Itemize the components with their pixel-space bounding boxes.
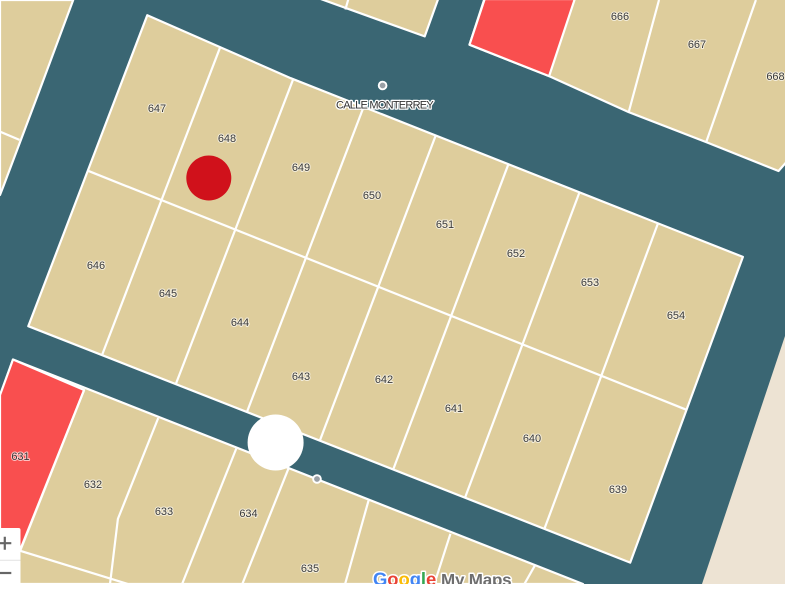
svg-text:640: 640 — [523, 433, 541, 445]
svg-text:635: 635 — [301, 563, 319, 575]
svg-text:645: 645 — [159, 288, 177, 300]
svg-text:644: 644 — [231, 317, 249, 329]
svg-text:CALLE MONTERREY: CALLE MONTERREY — [336, 100, 434, 112]
svg-text:633: 633 — [155, 506, 173, 518]
svg-text:634: 634 — [239, 508, 257, 520]
svg-text:Google: Google — [373, 569, 436, 585]
svg-text:650: 650 — [363, 190, 381, 202]
svg-text:643: 643 — [292, 371, 310, 383]
svg-text:653: 653 — [581, 277, 599, 289]
svg-text:652: 652 — [507, 248, 525, 260]
svg-text:646: 646 — [87, 260, 105, 272]
svg-text:667: 667 — [688, 39, 706, 51]
svg-text:632: 632 — [84, 479, 102, 491]
svg-text:666: 666 — [611, 11, 629, 23]
svg-text:631: 631 — [11, 451, 29, 463]
svg-text:649: 649 — [292, 162, 310, 174]
svg-text:641: 641 — [445, 403, 463, 415]
svg-text:668: 668 — [766, 71, 784, 83]
svg-text:647: 647 — [148, 103, 166, 115]
svg-text:642: 642 — [375, 374, 393, 386]
svg-text:654: 654 — [667, 310, 685, 322]
svg-text:My Maps: My Maps — [441, 571, 511, 585]
svg-text:651: 651 — [436, 219, 454, 231]
svg-text:648: 648 — [218, 133, 236, 145]
svg-text:639: 639 — [609, 484, 627, 496]
